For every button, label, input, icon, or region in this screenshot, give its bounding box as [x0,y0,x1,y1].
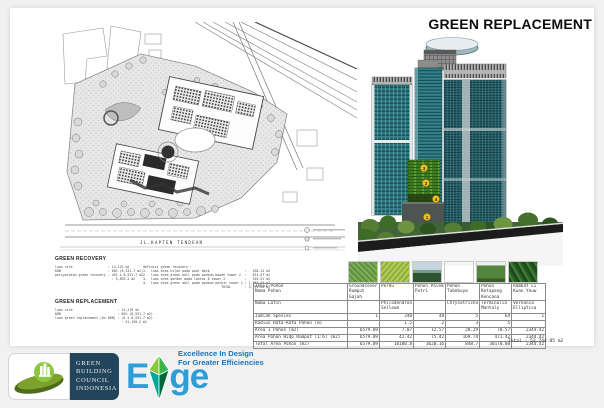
cell-area1: 7.07 [380,328,414,335]
cell-area1: 12.57 [414,328,446,335]
cell-total: 3620.16 [414,342,446,349]
edge-letter-e: E [126,355,148,399]
cell-latin: Philodendron Selloum [380,301,414,314]
cell-jumlah: 64 [480,314,512,321]
cell-total: 10180.8 [380,342,414,349]
cell-jumlah: 1 [348,314,380,321]
cell-area_hidup: 471.42 [480,335,512,342]
tabebuya-photo [444,261,474,283]
cell-name: Pohon Tabebuya [446,284,480,301]
row-label: Nama Latin [254,301,348,314]
site-plan-drawing: JL.KAPTEN TENDEAN [45,22,357,254]
right-tower [444,64,506,246]
drop-off-oval [175,128,215,152]
gbci-logo-emblem [8,353,70,400]
table-row: Jumlah Spesies1240485641 [254,314,546,321]
gbci-line: INDONESIA [76,385,119,393]
cell-jumlah: 5 [446,314,480,321]
table-row: Jenis Pohon Nama PohonGroundcover Rumput… [254,284,546,301]
green-replacement-lines: luas site : 14,219 m2KDB : 60% (8,531.7 … [55,308,153,324]
row-label: Total Area Pohon (m2) [254,342,348,349]
cell-jumlah: 1 [512,314,546,321]
cell-area1: 78.57 [480,328,512,335]
row-label: Jumlah Spesies [254,314,348,321]
cell-radius: 5 [480,321,512,328]
gbci-leaf-icon [9,354,69,399]
marker-2: 2 [425,181,428,186]
cell-name: Rambat Li Kuan Yeuw [512,284,546,301]
ketapang-kencana-photo [476,261,506,283]
cell-latin [348,301,380,314]
page: { "slide": { "title": "GREEN REPLACEMENT… [0,0,604,408]
edge-tagline-line2: For Greater Efficiencies [178,359,264,368]
table-total: Total : 53,744.05 m2 [508,339,563,344]
page-title: GREEN REPLACEMENT [428,16,592,32]
green-recovery-heading: GREEN RECOVERY [55,256,106,262]
marker-4: 4 [435,197,438,202]
row-label: Area Pohon Hidp Rumput (1:6) (m2) [254,335,348,342]
cell-radius: 3 [446,321,480,328]
perdu-photo [380,261,410,283]
cell-area_hidup: 75.42 [414,335,446,342]
palem-putri-photo [412,261,442,283]
plaza-circle [162,146,175,159]
green-replacement-heading: GREEN REPLACEMENT [55,299,117,305]
cell-jumlah: 48 [414,314,446,321]
presentation-slide: GREEN REPLACEMENT [10,8,594,346]
cell-radius [512,321,546,328]
cell-area_hidup: 6579.09 [348,335,380,342]
cell-total: 848.7 [446,342,480,349]
row-label: Radius Rata-Rata Pohon (m) [254,321,348,328]
gbci-line: GREEN [76,360,119,368]
table-row: Total Area Pohon (m2)6579.0910180.83620.… [254,342,546,349]
table-row: Nama LatinPhilodendron SelloumChrysotric… [254,301,546,314]
cell-area_hidup: 42.42 [380,335,414,342]
row-label: Jenis Pohon Nama Pohon [254,284,348,301]
cell-name: Groundcover Rumput Gajah [348,284,380,301]
row-label: Area 1 Pohon (m2) [254,328,348,335]
marker-3: 3 [423,166,426,171]
cell-name: Perdu [380,284,414,301]
groundcover-photo [348,261,378,283]
table-row: Area 1 Pohon (m2)6579.097.0712.5728.2978… [254,328,546,335]
plant-table: Jenis Pohon Nama PohonGroundcover Rumput… [253,283,546,349]
micro-line: : 51,190.2 m2 [55,320,153,324]
cell-radius: 2 [414,321,446,328]
cell-radius [348,321,380,328]
cell-radius: 1.5 [380,321,414,328]
cell-total: 30170.88 [480,342,512,349]
cell-area1: 6579.09 [348,328,380,335]
cell-area_hidup: 169.74 [446,335,480,342]
cell-latin [414,301,446,314]
gbci-line: COUNCIL [76,377,119,385]
table-row: Radius Rata-Rata Pohon (m)1.5235 [254,321,546,328]
table-row: Area Pohon Hidp Rumput (1:6) (m2)6579.09… [254,335,546,342]
gbci-line: BUILDING [76,368,119,376]
green-recovery-left: luas site : 14,219 m2KDB : 60% (8,531.7 … [55,265,143,281]
cell-name: Pohon Palem Putri [414,284,446,301]
cell-latin: Terminalia Mantaly [480,301,512,314]
cell-latin: Chrysotricha [446,301,480,314]
micro-line: TOTAL : 3,791.84 m2 [143,285,270,289]
left-tower [372,77,412,215]
building-rendering: 3 2 4 1 [358,36,563,266]
cell-area1: 2344.42 [512,328,546,335]
edge-diamond-icon [147,355,171,401]
green-recovery-right: definisi green recovery :1. luas area hi… [143,265,270,289]
cell-jumlah: 240 [380,314,414,321]
cell-total: 6579.09 [348,342,380,349]
marker-1: 1 [426,215,429,220]
cell-area1: 28.29 [446,328,480,335]
li-kuan-yeuw-photo [508,261,538,283]
edge-tagline: Excellence In Design For Greater Efficie… [178,350,264,368]
gbci-logo-wordmark: GREEN BUILDING COUNCIL INDONESIA [70,353,119,400]
street-label: JL.KAPTEN TENDEAN [140,240,203,245]
cell-name: Pohon Ketapang Kencana [480,284,512,301]
cell-latin: Vernonia Elliptica [512,301,546,314]
micro-line: : 3,839.2 m2 [55,277,143,281]
